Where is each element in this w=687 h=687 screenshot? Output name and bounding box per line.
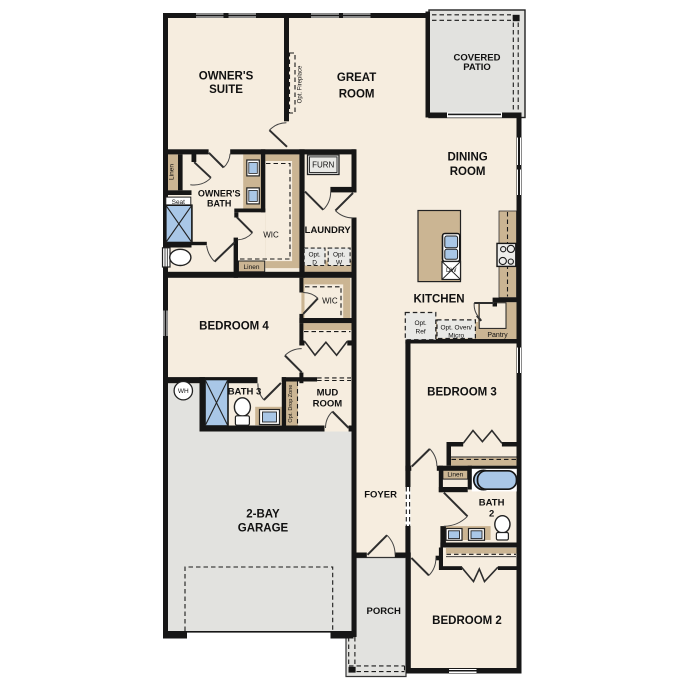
svg-text:Opt.: Opt. [333, 252, 345, 259]
svg-text:BEDROOM 4: BEDROOM 4 [199, 321, 269, 333]
svg-text:MUD: MUD [317, 387, 339, 398]
svg-text:DW: DW [446, 267, 457, 274]
svg-text:Opt. Fireplace: Opt. Fireplace [298, 65, 304, 103]
svg-text:Opt.: Opt. [414, 320, 426, 327]
svg-text:Opt. Oven/: Opt. Oven/ [440, 324, 472, 331]
svg-text:2: 2 [489, 508, 494, 519]
svg-text:WIC: WIC [322, 297, 338, 306]
svg-text:GREAT: GREAT [337, 72, 376, 84]
svg-text:W: W [336, 259, 343, 266]
svg-text:FOYER: FOYER [364, 490, 397, 501]
svg-text:KITCHEN: KITCHEN [413, 294, 464, 306]
svg-text:BEDROOM 2: BEDROOM 2 [432, 615, 502, 627]
svg-text:Linen: Linen [447, 472, 463, 479]
svg-text:BATH 3: BATH 3 [228, 387, 262, 398]
svg-text:Opt.: Opt. [308, 252, 320, 259]
svg-text:GARAGE: GARAGE [238, 522, 289, 534]
svg-text:OWNER'S: OWNER'S [198, 188, 241, 198]
svg-text:PATIO: PATIO [463, 62, 491, 73]
svg-text:Linen: Linen [244, 264, 260, 271]
svg-text:Micro: Micro [448, 332, 464, 339]
svg-text:BEDROOM 3: BEDROOM 3 [427, 386, 497, 398]
svg-text:BATH: BATH [479, 497, 505, 508]
svg-text:FURN: FURN [312, 161, 334, 170]
svg-text:SUITE: SUITE [209, 84, 243, 96]
svg-text:PORCH: PORCH [367, 606, 401, 617]
svg-text:LAUNDRY: LAUNDRY [305, 225, 352, 236]
svg-text:ROOM: ROOM [450, 166, 486, 178]
svg-text:BATH: BATH [207, 199, 231, 209]
svg-text:Ref: Ref [416, 329, 426, 336]
svg-text:WIC: WIC [263, 231, 279, 240]
svg-text:ROOM: ROOM [313, 399, 343, 410]
svg-text:2-BAY: 2-BAY [246, 509, 280, 521]
svg-text:ROOM: ROOM [339, 89, 375, 101]
svg-text:Linen: Linen [169, 164, 176, 180]
svg-text:D: D [312, 259, 317, 266]
svg-text:WH: WH [178, 388, 189, 395]
svg-text:Opt. Drop Zone: Opt. Drop Zone [288, 385, 294, 423]
svg-text:OWNER'S: OWNER'S [199, 71, 254, 83]
svg-text:Pantry: Pantry [487, 332, 508, 339]
svg-text:DINING: DINING [447, 152, 487, 164]
